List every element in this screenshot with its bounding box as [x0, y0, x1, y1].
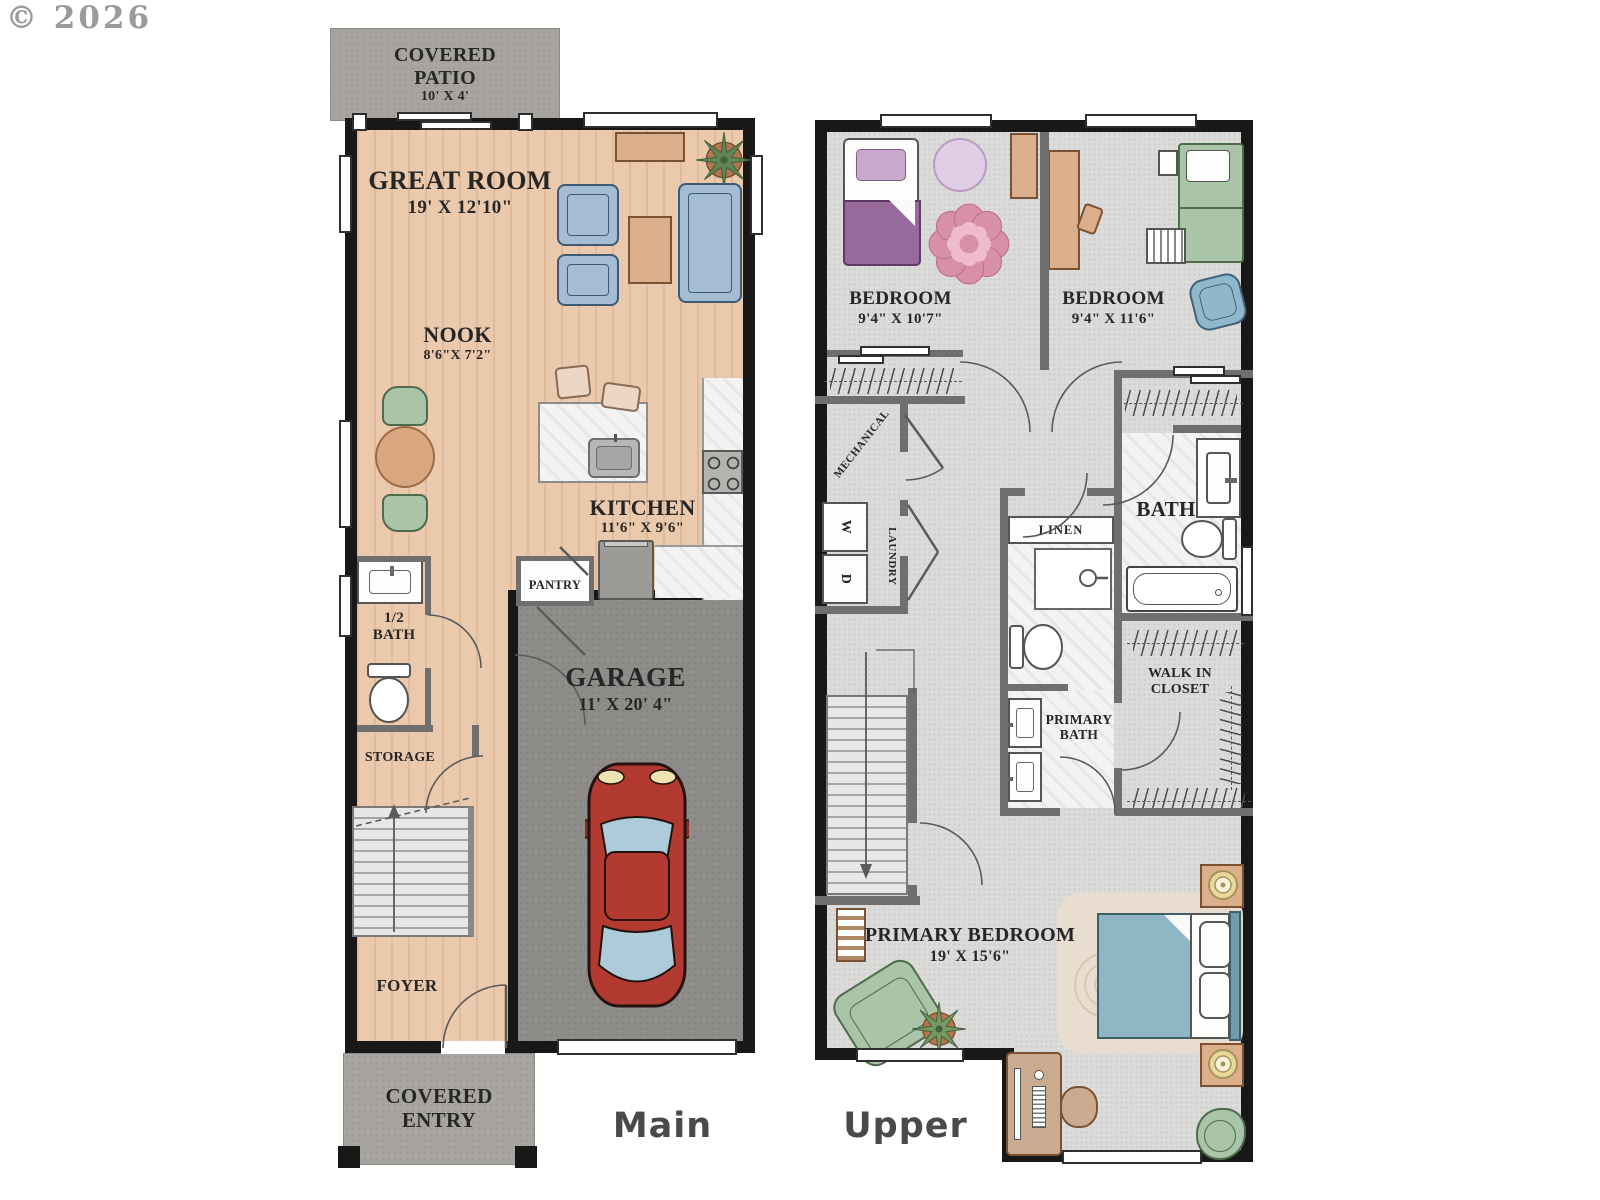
stairs-upper — [826, 695, 908, 895]
headboard — [1229, 911, 1241, 1041]
sofa-icon — [678, 183, 742, 303]
covered-patio-dims: 10' X 4' — [421, 89, 469, 105]
bedroom-left-label: BEDROOM — [828, 288, 973, 309]
primary-bedroom-dims: 19' X 15'6" — [855, 948, 1085, 966]
armchair-icon — [557, 184, 619, 246]
nook-window-left — [339, 420, 352, 528]
covered-entry-label: COVERED ENTRY — [377, 1085, 502, 1132]
wall — [815, 606, 908, 614]
wall — [425, 556, 431, 615]
island-stool — [600, 381, 641, 412]
bathtub-icon — [1126, 566, 1238, 612]
closet-rod-icon — [1125, 390, 1237, 416]
shower-head-icon — [1074, 562, 1110, 598]
wall — [472, 725, 479, 757]
kitchen-dims: 11'6" X 9'6" — [545, 520, 740, 537]
keyboard-icon — [1032, 1086, 1046, 1128]
wall — [1000, 808, 1060, 816]
garage-door — [557, 1039, 737, 1055]
kitchen-label: KITCHEN — [545, 496, 740, 521]
primary-bath-label: PRIMARY BATH — [1040, 712, 1118, 743]
wall-jamb — [352, 113, 367, 131]
great-room-window-left — [339, 155, 352, 233]
dining-chair-icon — [382, 494, 428, 532]
patio-slider-door-2 — [420, 121, 492, 130]
wall — [425, 668, 431, 725]
great-room-window-top — [583, 112, 718, 128]
stairs-main — [352, 806, 474, 937]
storage-label: STORAGE — [355, 750, 445, 766]
wall — [1114, 370, 1122, 433]
toilet-icon — [360, 662, 418, 726]
stove-icon — [702, 450, 743, 494]
laundry-label: LAUNDRY — [886, 514, 898, 598]
covered-patio-area: COVERED PATIO 10' X 4' — [330, 28, 560, 121]
lamp-icon — [1206, 868, 1240, 902]
great-room-dims: 19' X 12'10" — [355, 197, 565, 218]
bathroom-vanity — [1008, 698, 1042, 748]
foyer-label: FOYER — [362, 976, 452, 995]
bathroom-vanity — [1008, 752, 1042, 802]
coffee-table — [628, 216, 672, 284]
upper-floor-name: Upper — [843, 1106, 968, 1146]
dryer-letter: D — [837, 574, 853, 584]
great-room-label: GREAT ROOM — [355, 166, 565, 195]
wall — [357, 725, 433, 732]
main-floor-name: Main — [600, 1106, 725, 1146]
round-rug — [933, 138, 987, 192]
armchair-icon — [557, 254, 619, 306]
wall — [908, 688, 917, 823]
linen-label: LINEN — [1039, 523, 1084, 537]
wall — [900, 556, 908, 612]
double-bed-icon — [1178, 143, 1244, 263]
entry-post — [515, 1146, 537, 1168]
copyright-watermark: © 2026 — [6, 0, 152, 36]
nightstand — [1158, 150, 1178, 176]
bedroom-window — [1085, 114, 1197, 128]
wall — [900, 404, 908, 452]
washer-icon: W — [822, 502, 868, 552]
closet-slider — [1190, 375, 1241, 384]
closet-rod-icon — [1220, 692, 1242, 784]
wall — [1040, 132, 1049, 370]
primary-bedroom-window — [1062, 1150, 1202, 1164]
covered-entry-area: COVERED ENTRY — [343, 1053, 535, 1165]
wall — [357, 556, 430, 562]
dining-table — [375, 426, 435, 488]
desk-chair-icon — [1060, 1086, 1098, 1128]
nook-label: NOOK — [385, 323, 530, 348]
bedroom-right-dims: 9'4" X 11'6" — [1041, 311, 1186, 328]
dining-chair-icon — [382, 386, 428, 426]
bedroom-window — [880, 114, 992, 128]
closet-rod-icon — [830, 368, 956, 394]
wall — [900, 500, 908, 516]
pillow-icon — [1199, 921, 1231, 968]
wall — [1008, 684, 1068, 691]
garage-dims: 11' X 20' 4" — [523, 694, 728, 714]
door-swing-overlay — [0, 0, 1600, 1200]
island-stool — [554, 364, 591, 399]
wall — [1173, 425, 1241, 433]
mouse-icon — [1034, 1070, 1044, 1080]
toilet-icon — [1008, 618, 1064, 676]
tv-console — [615, 132, 685, 162]
bedroom-left-dims: 9'4" X 10'7" — [828, 311, 973, 328]
primary-bedroom-window — [856, 1048, 964, 1062]
washer-letter: W — [837, 520, 853, 534]
linen-closet: LINEN — [1008, 516, 1114, 544]
entry-post — [338, 1146, 360, 1168]
dresser-icon — [1010, 133, 1038, 199]
wall — [1000, 488, 1008, 815]
primary-bedroom-label: PRIMARY BEDROOM — [855, 924, 1085, 947]
bedroom-right-label: BEDROOM — [1041, 288, 1186, 309]
closet-rod-icon — [1133, 630, 1238, 656]
pantry-label: PANTRY — [518, 578, 592, 592]
toilet-icon — [1178, 514, 1238, 566]
covered-patio-label: COVERED PATIO — [370, 44, 520, 89]
plant-icon — [694, 132, 754, 188]
front-door-opening — [441, 1041, 505, 1054]
lamp-icon — [1206, 1047, 1240, 1081]
wall — [1114, 433, 1122, 703]
bath-window — [1241, 546, 1253, 616]
car-icon — [585, 758, 689, 1012]
bed-bench-icon — [1146, 228, 1186, 264]
nook-dims: 8'6"X 7'2" — [385, 348, 530, 364]
kitchen-sink — [588, 438, 640, 478]
sheet-fold — [1164, 915, 1190, 941]
patio-slider-door — [397, 112, 472, 121]
half-bath-window-left — [339, 575, 352, 637]
fridge-icon — [598, 540, 654, 600]
desk-icon — [1048, 150, 1080, 270]
floor-plan-canvas: © 2026 COVERED PATIO 10' X 4' — [0, 0, 1600, 1200]
half-bath-label: 1/2 BATH — [366, 610, 422, 644]
dryer-icon: D — [822, 554, 868, 604]
wall — [815, 896, 920, 905]
bathroom-vanity — [357, 560, 423, 604]
wall — [1115, 808, 1253, 816]
walk-in-closet-label: WALK IN CLOSET — [1134, 666, 1226, 698]
garage-label: GARAGE — [523, 662, 728, 693]
flower-rug-icon — [926, 202, 1012, 286]
pillow-icon — [1199, 972, 1231, 1019]
bath-label: BATH — [1126, 498, 1206, 522]
great-room-window-right — [750, 155, 763, 235]
monitor-icon — [1014, 1068, 1021, 1140]
kitchen-counter-bottom — [655, 545, 743, 598]
closet-slider — [838, 355, 884, 364]
wall-jamb — [518, 113, 533, 131]
blanket-fold — [889, 200, 915, 226]
wall — [1122, 613, 1253, 621]
